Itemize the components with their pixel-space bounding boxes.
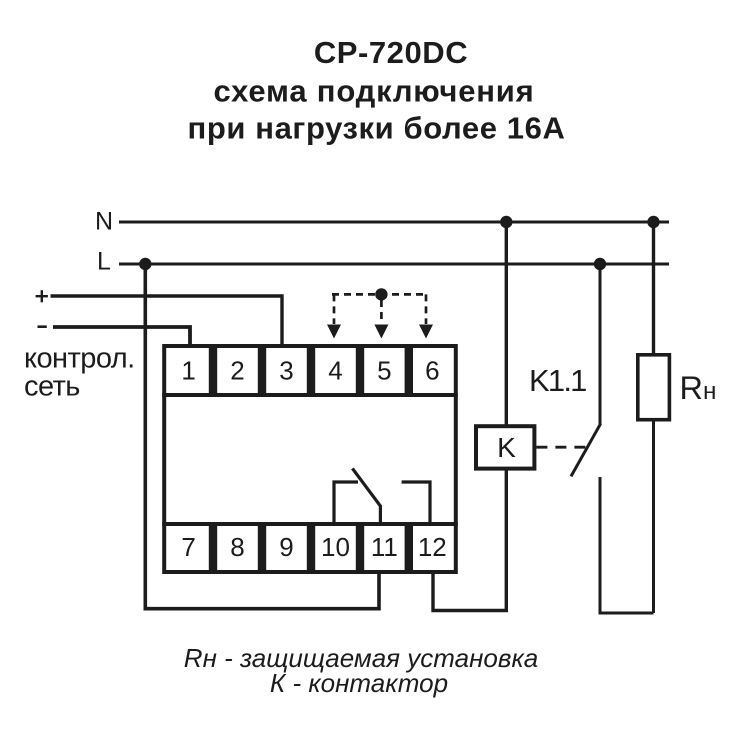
svg-text:8: 8 (230, 532, 244, 562)
svg-text:3: 3 (279, 356, 293, 386)
svg-text:12: 12 (418, 532, 447, 562)
svg-text:9: 9 (279, 532, 293, 562)
svg-text:4: 4 (328, 356, 342, 386)
svg-text:Rн: Rн (680, 370, 717, 406)
svg-text:6: 6 (425, 356, 439, 386)
svg-text:11: 11 (371, 532, 398, 562)
svg-text:K: K (497, 432, 516, 463)
svg-text:10: 10 (321, 532, 350, 562)
svg-text:К - контактор: К - контактор (270, 668, 448, 698)
svg-text:сеть: сеть (24, 371, 80, 403)
svg-text:L: L (97, 248, 111, 276)
svg-text:K1.1: K1.1 (529, 363, 586, 398)
svg-text:при нагрузки более 16А: при нагрузки более 16А (188, 111, 566, 146)
svg-text:7: 7 (181, 532, 195, 562)
svg-text:2: 2 (230, 356, 244, 386)
svg-text:N: N (95, 208, 113, 236)
svg-text:1: 1 (181, 356, 195, 386)
svg-text:схема подключения: схема подключения (213, 74, 534, 109)
svg-text:5: 5 (377, 356, 391, 386)
svg-text:СР-720DC: СР-720DC (314, 35, 468, 70)
